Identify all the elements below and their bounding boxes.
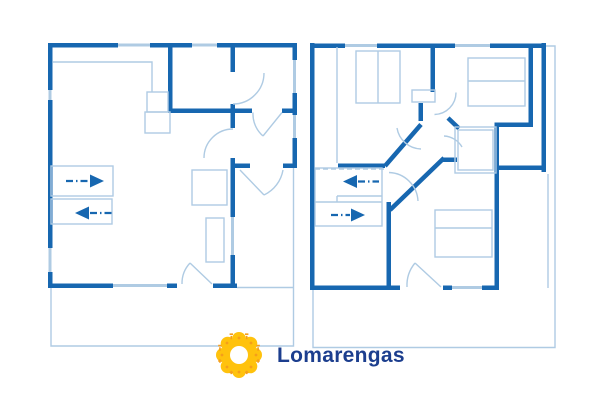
left-terrace-outline xyxy=(51,168,294,346)
left-furniture xyxy=(53,62,227,262)
left-stair-up-arrow-icon xyxy=(90,175,104,188)
left-walls xyxy=(48,43,297,288)
left-stair-down-arrow-icon xyxy=(75,207,89,220)
right-stair-up-arrow-icon xyxy=(351,209,365,222)
floor-plan-right xyxy=(310,43,555,348)
right-stair-outline xyxy=(315,168,382,226)
floor-plans-svg xyxy=(0,0,600,400)
sun-flower-icon xyxy=(216,332,262,378)
sun-center xyxy=(230,346,248,364)
brand-wordmark: Lomarengas xyxy=(277,344,437,368)
left-staircase xyxy=(51,166,113,224)
floor-plan-left xyxy=(48,43,297,346)
right-diagonal-walls xyxy=(385,118,459,210)
right-staircase xyxy=(315,168,384,226)
right-walls xyxy=(310,43,546,290)
right-stair-down-arrow-icon xyxy=(343,175,357,188)
floor-plan-image: Lomarengas xyxy=(0,0,600,400)
